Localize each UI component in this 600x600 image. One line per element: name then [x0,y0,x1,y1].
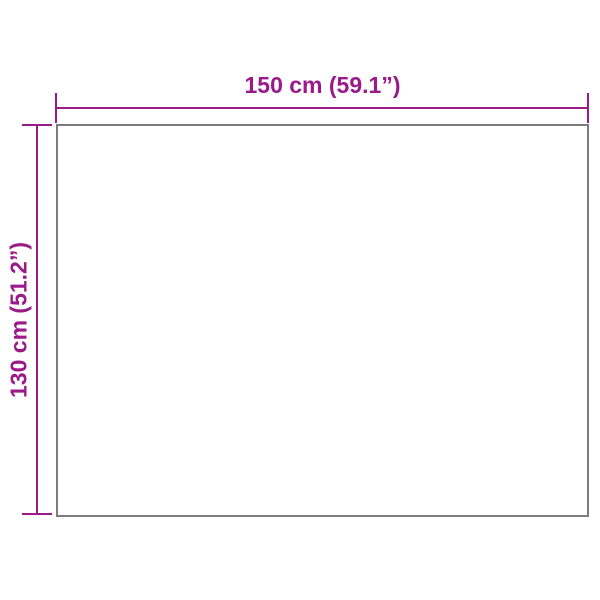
width-dimension-line [56,107,589,109]
product-outline [56,124,589,517]
height-dimension-line [36,124,38,515]
width-dimension-label: 150 cm (59.1”) [56,72,589,99]
height-dimension-top-tick [22,124,52,126]
height-dimension-bottom-tick [22,513,52,515]
height-dimension-label: 130 cm (51.2”) [6,242,33,398]
dimension-diagram: 150 cm (59.1”) 130 cm (51.2”) [0,0,600,600]
